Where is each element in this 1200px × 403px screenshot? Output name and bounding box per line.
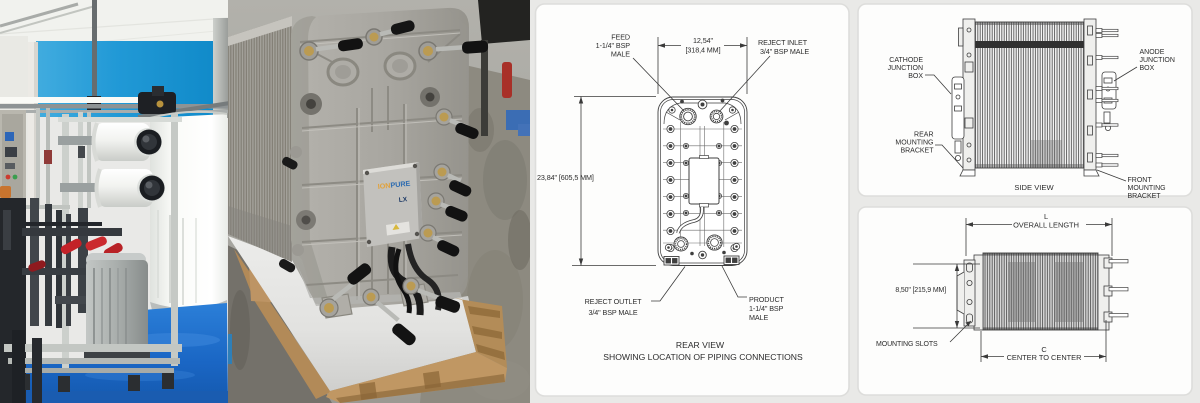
svg-text:OVERALL LENGTH: OVERALL LENGTH xyxy=(1013,221,1079,230)
svg-text:MALE: MALE xyxy=(611,50,630,59)
svg-text:ANODE: ANODE xyxy=(1140,49,1165,56)
svg-text:LX: LX xyxy=(398,196,408,204)
svg-text:BRACKET: BRACKET xyxy=(1128,193,1162,200)
svg-text:MOUNTING: MOUNTING xyxy=(895,140,933,147)
svg-text:CATHODE: CATHODE xyxy=(889,57,923,64)
svg-text:BOX: BOX xyxy=(908,73,923,80)
svg-text:MOUNTING: MOUNTING xyxy=(1128,185,1166,192)
svg-text:3/4" BSP MALE: 3/4" BSP MALE xyxy=(760,47,809,56)
svg-text:REAR: REAR xyxy=(914,132,933,139)
svg-text:FRONT: FRONT xyxy=(1128,177,1153,184)
svg-text:CENTER TO CENTER: CENTER TO CENTER xyxy=(1007,353,1082,362)
svg-text:BRACKET: BRACKET xyxy=(900,148,934,155)
svg-text:3/4" BSP MALE: 3/4" BSP MALE xyxy=(588,308,637,317)
svg-text:MALE: MALE xyxy=(749,313,768,322)
svg-text:12,54": 12,54" xyxy=(693,36,713,45)
svg-text:8,50" [215,9 MM]: 8,50" [215,9 MM] xyxy=(895,287,946,294)
svg-text:1-1/4" BSP: 1-1/4" BSP xyxy=(749,304,784,313)
svg-text:23,84" [605,5 MM]: 23,84" [605,5 MM] xyxy=(537,173,594,182)
svg-text:SIDE VIEW: SIDE VIEW xyxy=(1014,183,1054,192)
svg-text:SHOWING LOCATION OF PIPING CON: SHOWING LOCATION OF PIPING CONNECTIONS xyxy=(603,352,803,362)
svg-text:REJECT INLET: REJECT INLET xyxy=(758,38,808,47)
svg-text:REAR VIEW: REAR VIEW xyxy=(676,340,725,350)
svg-text:PRODUCT: PRODUCT xyxy=(749,295,785,304)
svg-text:JUNCTION: JUNCTION xyxy=(1140,57,1175,64)
svg-text:JUNCTION: JUNCTION xyxy=(888,65,923,72)
svg-text:REJECT OUTLET: REJECT OUTLET xyxy=(585,297,643,306)
svg-text:MOUNTING SLOTS: MOUNTING SLOTS xyxy=(876,341,938,348)
svg-text:BOX: BOX xyxy=(1140,65,1155,72)
svg-text:[318,4 MM]: [318,4 MM] xyxy=(686,46,721,55)
